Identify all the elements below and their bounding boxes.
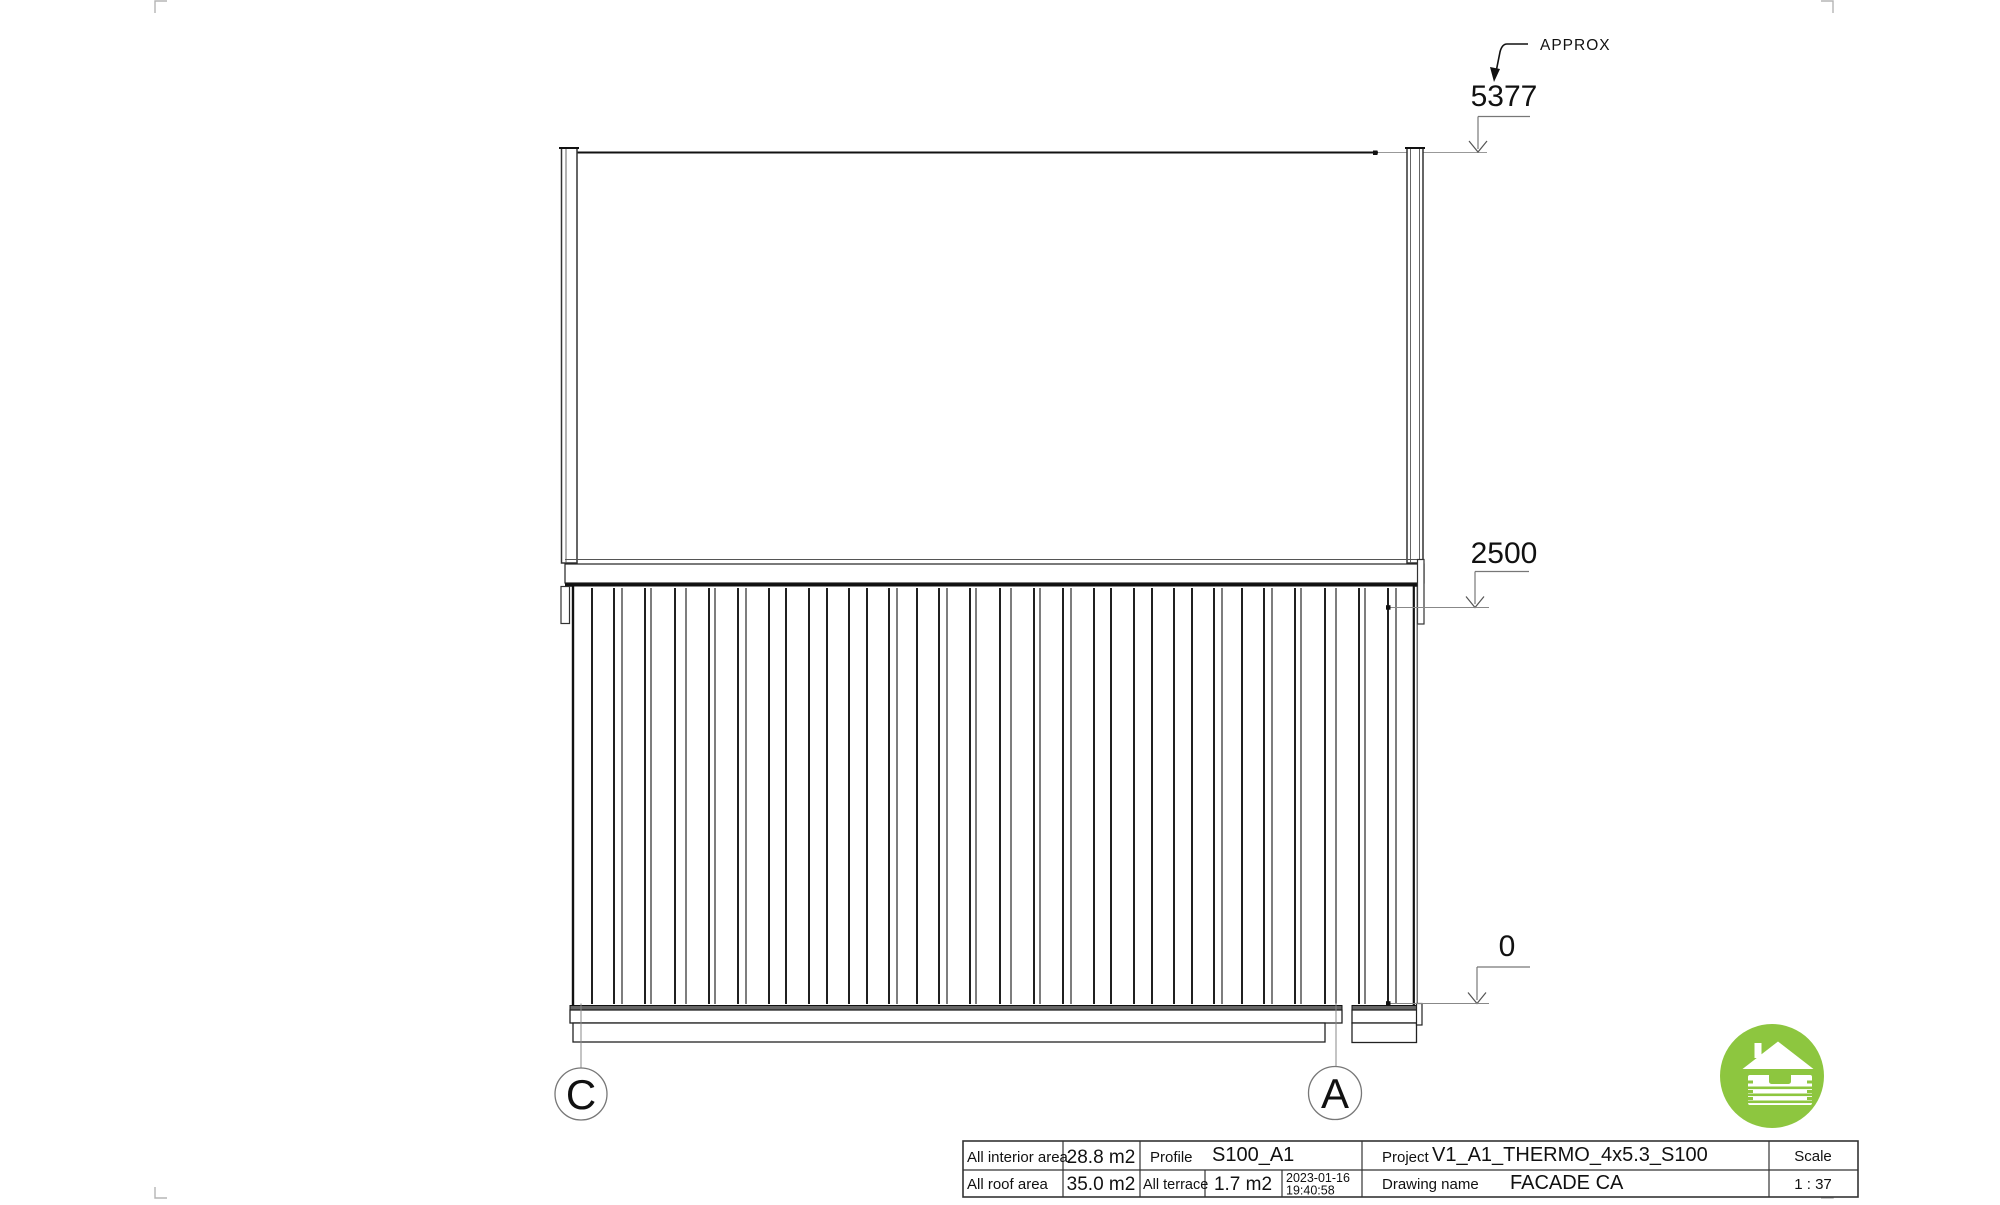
grid-letter-a: A — [1321, 1070, 1349, 1117]
fascia-board — [565, 564, 1424, 583]
tb-profile-label: Profile — [1150, 1149, 1193, 1166]
dim-ref-dot-2500 — [1386, 605, 1391, 610]
foundation-strip — [573, 1023, 1325, 1042]
title-block: All interior area 28.8 m2 Profile S100_A… — [963, 1141, 1858, 1198]
dim-ref-dot-0 — [1386, 1001, 1391, 1006]
tb-date-line2: 19:40:58 — [1286, 1184, 1335, 1198]
tb-drawing-name-value: FACADE CA — [1510, 1172, 1624, 1194]
drawing-sheet: 5377 APPROX 2500 0 C A — [0, 0, 2000, 1200]
approx-leader-line — [1496, 44, 1528, 72]
logo-log-gap-3 — [1746, 1101, 1814, 1104]
tb-roof-area-value: 35.0 m2 — [1067, 1174, 1136, 1195]
corner-mark-top-left — [155, 1, 167, 13]
dim-value-5377: 5377 — [1471, 80, 1538, 113]
tb-project-value: V1_A1_THERMO_4x5.3_S100 — [1432, 1144, 1708, 1166]
facade-drawing-svg: 5377 APPROX 2500 0 C A — [0, 0, 2000, 1200]
siding-wall — [572, 587, 1417, 1006]
logo-log-gap-2 — [1746, 1094, 1814, 1097]
approx-annotation: APPROX — [1490, 37, 1611, 82]
upper-storey — [559, 148, 1487, 563]
tb-profile-value: S100_A1 — [1212, 1144, 1294, 1166]
tb-scale-label: Scale — [1794, 1148, 1832, 1165]
logo-log-gap-1 — [1746, 1087, 1814, 1090]
step-right-trim — [1417, 1004, 1423, 1026]
left-corner-trim — [561, 587, 570, 624]
logo-notch-r2 — [1807, 1090, 1812, 1093]
tb-roof-area-label: All roof area — [967, 1176, 1049, 1193]
tb-interior-area-value: 28.8 m2 — [1067, 1147, 1136, 1168]
right-corner-post — [1407, 148, 1423, 563]
grid-letter-c: C — [566, 1071, 596, 1118]
dim-value-2500: 2500 — [1471, 537, 1538, 570]
logo-door-notch — [1769, 1073, 1791, 1084]
step-upper-box — [1352, 1010, 1417, 1023]
tb-scale-value: 1 : 37 — [1794, 1176, 1832, 1193]
base-top-band-left — [570, 1006, 1342, 1011]
logo-notch-l1 — [1748, 1081, 1753, 1084]
siding-panel — [572, 587, 1415, 1006]
dim-ref-dot-top — [1373, 151, 1378, 156]
left-corner-post — [562, 148, 578, 563]
corner-mark-bottom-left — [155, 1187, 167, 1198]
logo-notch-r1 — [1807, 1081, 1812, 1084]
corner-mark-top-right — [1821, 1, 1833, 13]
level-dimension-5377: 5377 — [1469, 80, 1537, 152]
logo-notch-l2 — [1748, 1090, 1753, 1093]
tb-terrace-label: All terrace — [1143, 1177, 1208, 1193]
dim-value-0: 0 — [1499, 930, 1516, 963]
company-logo — [1720, 1024, 1824, 1128]
approx-label: APPROX — [1540, 37, 1611, 54]
logo-notch-l3 — [1748, 1097, 1753, 1100]
base-fascia-left — [570, 1010, 1342, 1023]
tb-drawing-name-label: Drawing name — [1382, 1176, 1479, 1193]
tb-interior-area-label: All interior area — [967, 1149, 1069, 1166]
tb-terrace-value: 1.7 m2 — [1214, 1174, 1272, 1195]
logo-notch-r3 — [1807, 1097, 1812, 1100]
right-corner-trim — [1418, 560, 1425, 625]
step-lower-box — [1352, 1023, 1417, 1043]
base-foundation — [570, 1004, 1422, 1043]
tb-project-label: Project — [1382, 1149, 1430, 1166]
step-top-band — [1352, 1006, 1417, 1011]
